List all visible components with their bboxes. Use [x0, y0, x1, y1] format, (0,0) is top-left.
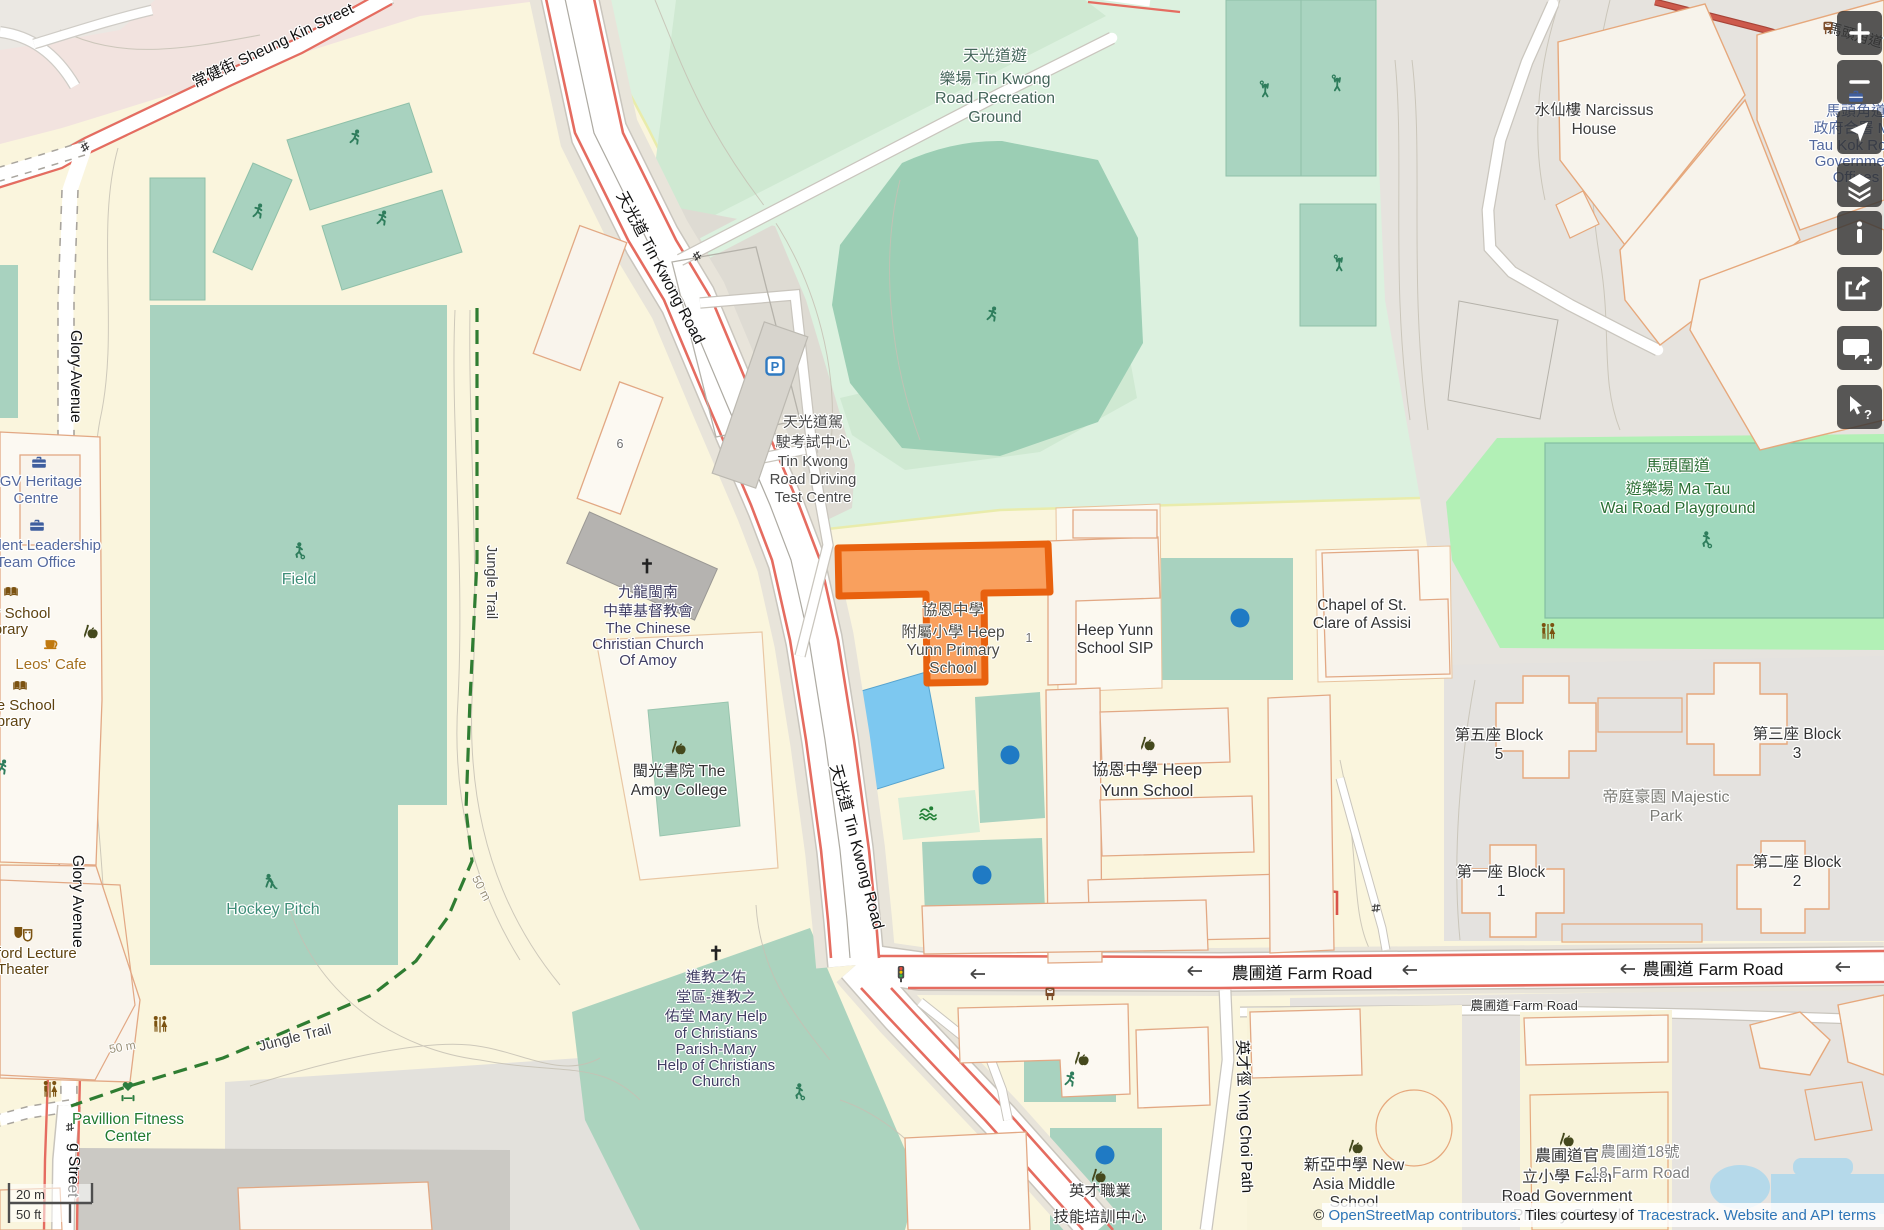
- svg-text:© OpenStreetMap contributors.: © OpenStreetMap contributors. Tiles cour…: [1313, 1207, 1876, 1224]
- svg-text:Block: Block: [1503, 864, 1545, 881]
- svg-text:Tin Kwong: Tin Kwong: [971, 71, 1050, 88]
- svg-text:House: House: [1572, 121, 1617, 138]
- svg-text:Help of Christians: Help of Christians: [657, 1057, 775, 1074]
- svg-text:Farm Road: Farm Road: [1509, 998, 1578, 1013]
- svg-text:Heep: Heep: [1158, 761, 1202, 779]
- svg-text:Center: Center: [105, 1128, 152, 1145]
- svg-text:1: 1: [1026, 631, 1033, 645]
- svg-text:Tin Kwong: Tin Kwong: [778, 453, 848, 470]
- svg-text:Yunn Primary: Yunn Primary: [907, 642, 1000, 659]
- svg-text:KGV Heritage: KGV Heritage: [0, 473, 82, 490]
- svg-text:Parish-Mary: Parish-Mary: [676, 1041, 757, 1058]
- svg-text:Narcissus: Narcissus: [1581, 102, 1654, 119]
- svg-text:Field: Field: [282, 571, 317, 588]
- svg-text:Ground: Ground: [968, 109, 1021, 126]
- svg-text:Of Amoy: Of Amoy: [619, 652, 677, 669]
- svg-text:Ma Tau: Ma Tau: [1674, 481, 1731, 498]
- svg-text:Library: Library: [0, 621, 28, 638]
- svg-text:School: School: [929, 660, 976, 677]
- svg-text:School SIP: School SIP: [1077, 640, 1154, 657]
- svg-text:Block: Block: [1799, 726, 1841, 743]
- svg-text:Jungle Trail: Jungle Trail: [483, 545, 499, 619]
- svg-text:Road Recreation: Road Recreation: [935, 90, 1055, 107]
- svg-text:Centre: Centre: [14, 490, 59, 507]
- svg-text:Team Office: Team Office: [0, 554, 76, 571]
- svg-text:Road Driving: Road Driving: [770, 471, 857, 488]
- svg-text:Church: Church: [692, 1073, 740, 1090]
- svg-text:Yunn School: Yunn School: [1101, 782, 1194, 800]
- svg-text:Block: Block: [1799, 854, 1841, 871]
- svg-text:5: 5: [1495, 746, 1504, 763]
- svg-text:?: ?: [1864, 407, 1872, 422]
- svg-text:Library: Library: [0, 713, 31, 730]
- svg-text:Wai Road Playground: Wai Road Playground: [1601, 500, 1756, 517]
- svg-text:1: 1: [1497, 883, 1506, 900]
- svg-text:Park: Park: [1650, 808, 1684, 825]
- svg-text:Leos' Cafe: Leos' Cafe: [15, 656, 86, 673]
- svg-text:Junior School: Junior School: [0, 605, 50, 622]
- svg-text:Christian Church: Christian Church: [592, 636, 704, 653]
- svg-text:Glory Avenue: Glory Avenue: [69, 855, 86, 948]
- svg-text:Student Leadership: Student Leadership: [0, 537, 101, 554]
- svg-text:Glory Avenue: Glory Avenue: [67, 330, 84, 423]
- svg-text:-: -: [706, 989, 711, 1006]
- svg-text:6: 6: [617, 437, 624, 451]
- svg-text:Radford Lecture: Radford Lecture: [0, 945, 77, 962]
- svg-text:Farm Road: Farm Road: [1283, 964, 1373, 983]
- svg-text:Test Centre: Test Centre: [775, 489, 852, 506]
- svg-text:Hockey Pitch: Hockey Pitch: [226, 901, 319, 918]
- svg-text:Road Government: Road Government: [1502, 1188, 1633, 1205]
- svg-text:20 m: 20 m: [16, 1187, 45, 1202]
- svg-text:Mary Help: Mary Help: [695, 1008, 768, 1025]
- svg-text:Heep Yunn: Heep Yunn: [1077, 622, 1153, 639]
- svg-text:Farm Road: Farm Road: [1694, 960, 1784, 979]
- svg-text:New: New: [1368, 1157, 1405, 1174]
- svg-text:Theater: Theater: [0, 961, 49, 978]
- svg-text:Majestic: Majestic: [1666, 789, 1729, 806]
- svg-text:of Christians: of Christians: [674, 1025, 757, 1042]
- svg-text:Block: Block: [1501, 727, 1543, 744]
- svg-text:18 Farm Road: 18 Farm Road: [1591, 1165, 1690, 1182]
- svg-text:Pavillion Fitness: Pavillion Fitness: [72, 1111, 184, 1128]
- svg-text:Clare of Assisi: Clare of Assisi: [1313, 615, 1411, 632]
- svg-text:Middle School: Middle School: [0, 697, 55, 714]
- svg-text:50 ft: 50 ft: [16, 1207, 42, 1222]
- svg-text:Asia Middle: Asia Middle: [1313, 1176, 1396, 1193]
- svg-text:The: The: [695, 763, 726, 780]
- svg-text:Chapel of St.: Chapel of St.: [1317, 597, 1407, 614]
- svg-text:3: 3: [1793, 745, 1802, 762]
- svg-text:The Chinese: The Chinese: [606, 620, 691, 637]
- svg-text:Heep: Heep: [963, 624, 1004, 641]
- svg-text:Amoy College: Amoy College: [631, 782, 728, 799]
- svg-text:2: 2: [1793, 873, 1802, 890]
- svg-text:18: 18: [1647, 1144, 1664, 1161]
